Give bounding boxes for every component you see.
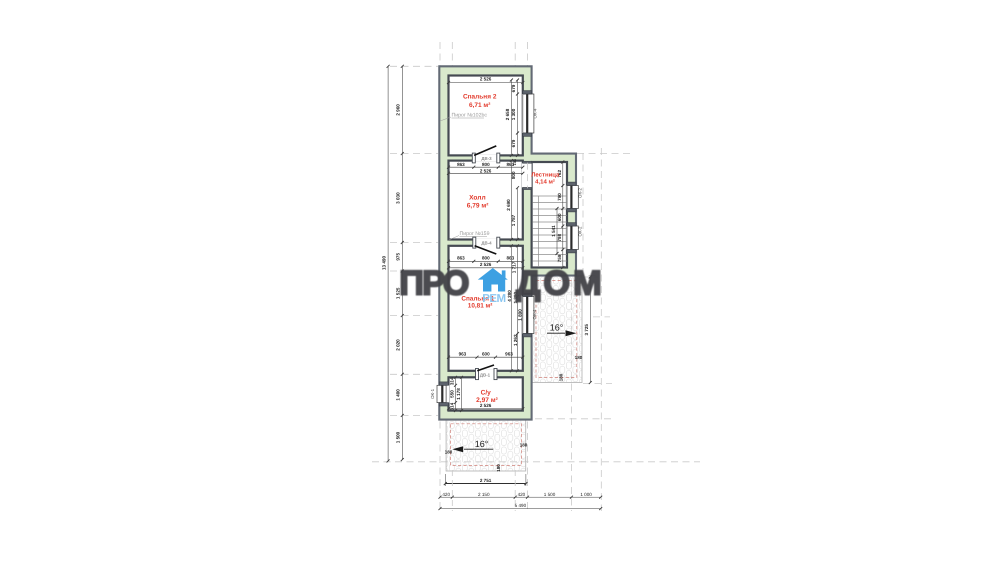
svg-text:16°: 16° <box>475 439 489 449</box>
svg-text:2 690: 2 690 <box>506 199 511 211</box>
svg-text:800: 800 <box>482 255 490 260</box>
svg-text:1 300: 1 300 <box>511 108 516 120</box>
svg-text:ДВ-3: ДВ-3 <box>481 156 492 161</box>
svg-text:550: 550 <box>450 390 455 398</box>
svg-text:180: 180 <box>496 464 501 472</box>
svg-text:180: 180 <box>520 443 528 448</box>
svg-text:6,71 м²: 6,71 м² <box>469 102 491 109</box>
svg-text:1 787: 1 787 <box>511 214 516 226</box>
svg-text:13 490: 13 490 <box>382 256 387 270</box>
svg-text:ДВ-1: ДВ-1 <box>480 373 491 378</box>
svg-text:ОК-2: ОК-2 <box>578 226 583 236</box>
svg-text:790: 790 <box>557 193 562 201</box>
svg-text:1 500: 1 500 <box>396 431 401 443</box>
svg-text:103: 103 <box>513 159 517 165</box>
svg-text:180: 180 <box>445 450 453 455</box>
svg-text:314: 314 <box>450 402 455 410</box>
svg-text:975: 975 <box>396 253 401 261</box>
svg-text:ОК-2: ОК-2 <box>578 188 583 198</box>
svg-text:800: 800 <box>511 171 516 179</box>
svg-text:РЕМ: РЕМ <box>482 293 505 305</box>
svg-text:ПРО: ПРО <box>399 265 468 303</box>
svg-text:863: 863 <box>457 162 465 167</box>
svg-text:2 150: 2 150 <box>478 492 490 497</box>
svg-text:1 890: 1 890 <box>517 309 522 321</box>
svg-text:Спальня 2: Спальня 2 <box>463 94 497 101</box>
svg-text:2 020: 2 020 <box>396 339 401 351</box>
svg-text:3 030: 3 030 <box>396 192 401 204</box>
svg-text:679: 679 <box>511 84 516 92</box>
svg-text:314: 314 <box>450 377 455 385</box>
svg-text:863: 863 <box>457 255 465 260</box>
svg-text:1 541: 1 541 <box>551 225 556 237</box>
svg-text:679: 679 <box>511 139 516 147</box>
svg-text:1 000: 1 000 <box>580 492 592 497</box>
svg-text:2 658: 2 658 <box>505 108 510 120</box>
svg-text:Лестница: Лестница <box>531 172 560 179</box>
svg-text:800: 800 <box>482 162 490 167</box>
svg-text:2 526: 2 526 <box>480 262 492 267</box>
svg-text:798: 798 <box>557 234 562 242</box>
svg-text:ОК-1: ОК-1 <box>430 388 435 398</box>
svg-text:4 280: 4 280 <box>507 290 512 302</box>
svg-text:ОК-4: ОК-4 <box>532 309 537 319</box>
svg-text:963: 963 <box>459 351 467 356</box>
svg-text:С/у: С/у <box>481 389 492 396</box>
svg-text:180: 180 <box>559 373 564 381</box>
svg-text:5 490: 5 490 <box>515 503 527 508</box>
svg-text:3 725: 3 725 <box>584 324 589 336</box>
svg-text:1 400: 1 400 <box>396 389 401 401</box>
svg-text:Пирог №159: Пирог №159 <box>460 231 490 237</box>
svg-text:4,14 м²: 4,14 м² <box>535 179 555 186</box>
svg-text:2 960: 2 960 <box>396 104 401 116</box>
svg-text:16°: 16° <box>550 323 564 333</box>
svg-text:Холл: Холл <box>469 194 486 201</box>
svg-text:600: 600 <box>482 351 490 356</box>
svg-text:759: 759 <box>557 254 562 262</box>
svg-text:ДВ-4: ДВ-4 <box>481 241 492 246</box>
svg-text:1 262: 1 262 <box>513 334 518 346</box>
svg-text:600: 600 <box>557 213 562 221</box>
svg-text:420: 420 <box>442 492 450 497</box>
svg-text:963: 963 <box>505 351 513 356</box>
svg-text:1 500: 1 500 <box>544 492 556 497</box>
svg-text:6,79 м²: 6,79 м² <box>467 203 490 210</box>
svg-text:1 178: 1 178 <box>456 388 461 400</box>
svg-text:Пирог №102bc: Пирог №102bc <box>452 113 488 119</box>
svg-text:2 526: 2 526 <box>480 77 492 82</box>
svg-text:2,97 м²: 2,97 м² <box>476 397 499 404</box>
svg-text:420: 420 <box>518 492 526 497</box>
svg-text:ДОМ: ДОМ <box>516 265 605 303</box>
svg-text:863: 863 <box>506 255 514 260</box>
svg-text:ОК-4: ОК-4 <box>533 108 538 118</box>
svg-text:2 751: 2 751 <box>480 478 492 483</box>
svg-text:180: 180 <box>575 355 583 360</box>
svg-text:2 526: 2 526 <box>480 169 492 174</box>
